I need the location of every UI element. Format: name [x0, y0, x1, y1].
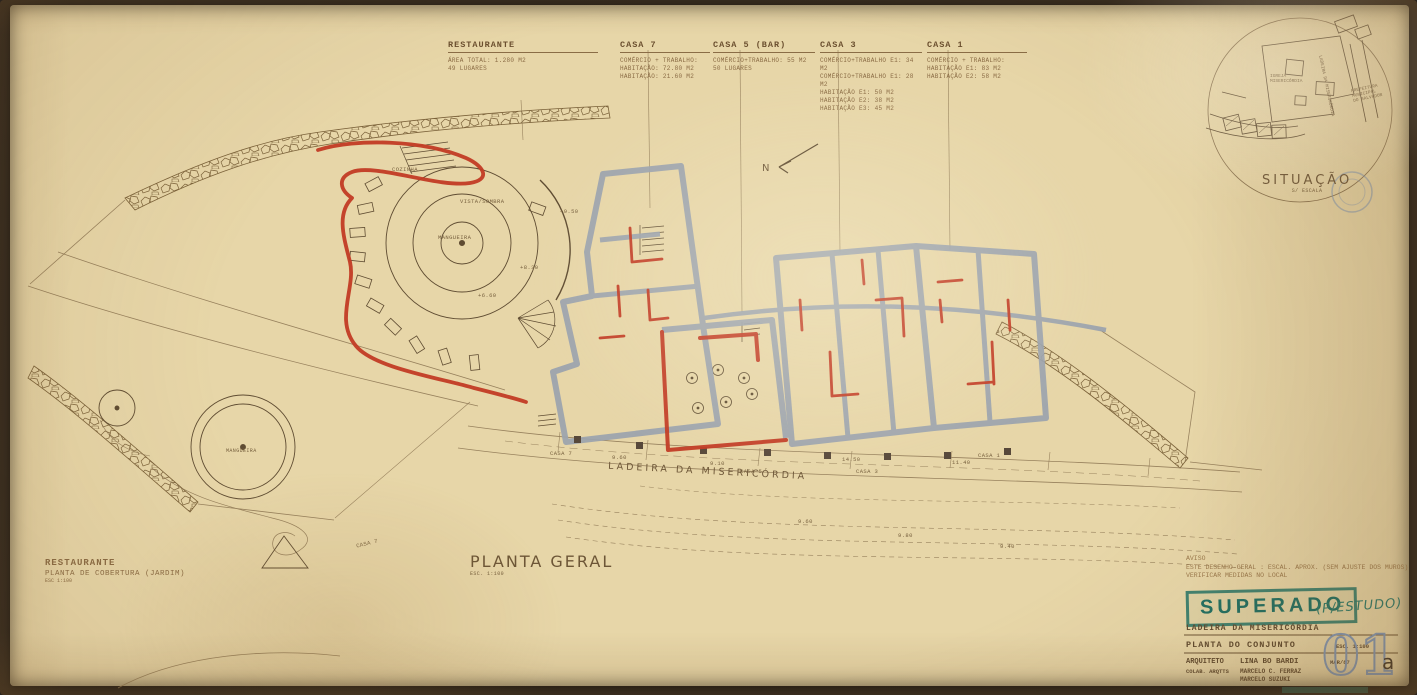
titleblock-architect-label: ARQUITETO [1186, 658, 1224, 666]
titleblock-architect: LINA BO BARDI [1240, 658, 1299, 666]
label-dim: 14.50 [842, 456, 861, 463]
label-contour: 9.60 [798, 518, 813, 525]
titleblock-collab1: MARCELO C. FERRAZ [1240, 668, 1301, 675]
teal-stamp-fragment [1282, 687, 1368, 693]
label-mangueira: MANGUEIRA [438, 234, 471, 241]
label-north: N [762, 163, 769, 174]
annotation-title: CASA 7 [620, 40, 710, 53]
label-elevation: +6.60 [478, 292, 497, 299]
caption-cobertura: RESTAURANTE PLANTA DE COBERTURA (JARDIM)… [45, 558, 185, 584]
annotation-casa1: CASA 1 COMÉRCIO + TRABALHO: HABITAÇÃO E1… [927, 40, 1027, 81]
stone-wall-bands [28, 106, 1188, 512]
label-dim: 11.40 [952, 459, 971, 466]
sheet-number-suffix: a [1382, 650, 1394, 674]
annotation-title: CASA 5 (BAR) [713, 40, 815, 53]
north-arrow [779, 144, 818, 173]
label-vista-sombra: VISTA/SOMBRA [460, 198, 504, 205]
titleblock-collab-label: COLAB. ARQTTS [1186, 668, 1229, 675]
label-contour: 9.40 [1000, 543, 1015, 550]
label-elevation: +8.30 [520, 264, 539, 271]
scanned-drawing-sheet: RESTAURANTE ÁREA TOTAL: 1.280 M2 49 LUGA… [0, 0, 1417, 695]
annotation-title: RESTAURANTE [448, 40, 598, 53]
annotation-title: CASA 3 [820, 40, 922, 53]
annotation-restaurante: RESTAURANTE ÁREA TOTAL: 1.280 M2 49 LUGA… [448, 40, 598, 73]
titleblock-sheet-title: PLANTA DO CONJUNTO [1186, 640, 1296, 650]
caption-planta-geral: PLANTA GERAL ESC. 1:100 [470, 552, 613, 577]
label-cozinha: COZINHA [392, 166, 418, 173]
situacao-title: SITUAÇÃO S/ ESCALA [1262, 173, 1352, 194]
annotation-casa5: CASA 5 (BAR) COMÉRCIO+TRABALHO: 55 M2 50… [713, 40, 815, 73]
label-casa3-street: CASA 3 [856, 468, 878, 475]
label-elevation: +9.50 [560, 208, 579, 215]
label-contour: 9.80 [898, 532, 913, 539]
courtyard-tables [687, 365, 758, 414]
annotation-title: CASA 1 [927, 40, 1027, 53]
annotation-casa7: CASA 7 COMÉRCIO + TRABALHO: HABITAÇÃO: 7… [620, 40, 710, 81]
label-casa7-street: CASA 7 [550, 450, 572, 457]
label-igreja: IGREJA MISERICÓRDIA [1270, 74, 1302, 84]
annotation-casa3: CASA 3 COMÉRCIO+TRABALHO E1: 34 M2 COMÉR… [820, 40, 922, 113]
roof-garden-inset [99, 390, 308, 568]
label-dim: 9.10 [710, 460, 725, 467]
label-dim: 9.60 [612, 454, 627, 461]
titleblock-collab2: MARCELO SUZUKI [1240, 676, 1290, 683]
masonry-walls [553, 166, 1106, 444]
restaurant-tables [350, 177, 546, 371]
label-inset-mangueira: MANGUEIRA [226, 448, 257, 454]
handwritten-note: AVISO ESTE DESENHO-GERAL : ESCAL. APROX.… [1186, 555, 1408, 581]
sheet-number-numerals: 01 [1318, 624, 1417, 688]
label-casa1-street: CASA 1 [978, 452, 1000, 459]
titleblock-project: LADEIRA DA MISERICÓRDIA [1186, 624, 1319, 633]
red-marker-lines [318, 142, 1010, 450]
label-casa5-street: CASA 5 [740, 468, 762, 475]
